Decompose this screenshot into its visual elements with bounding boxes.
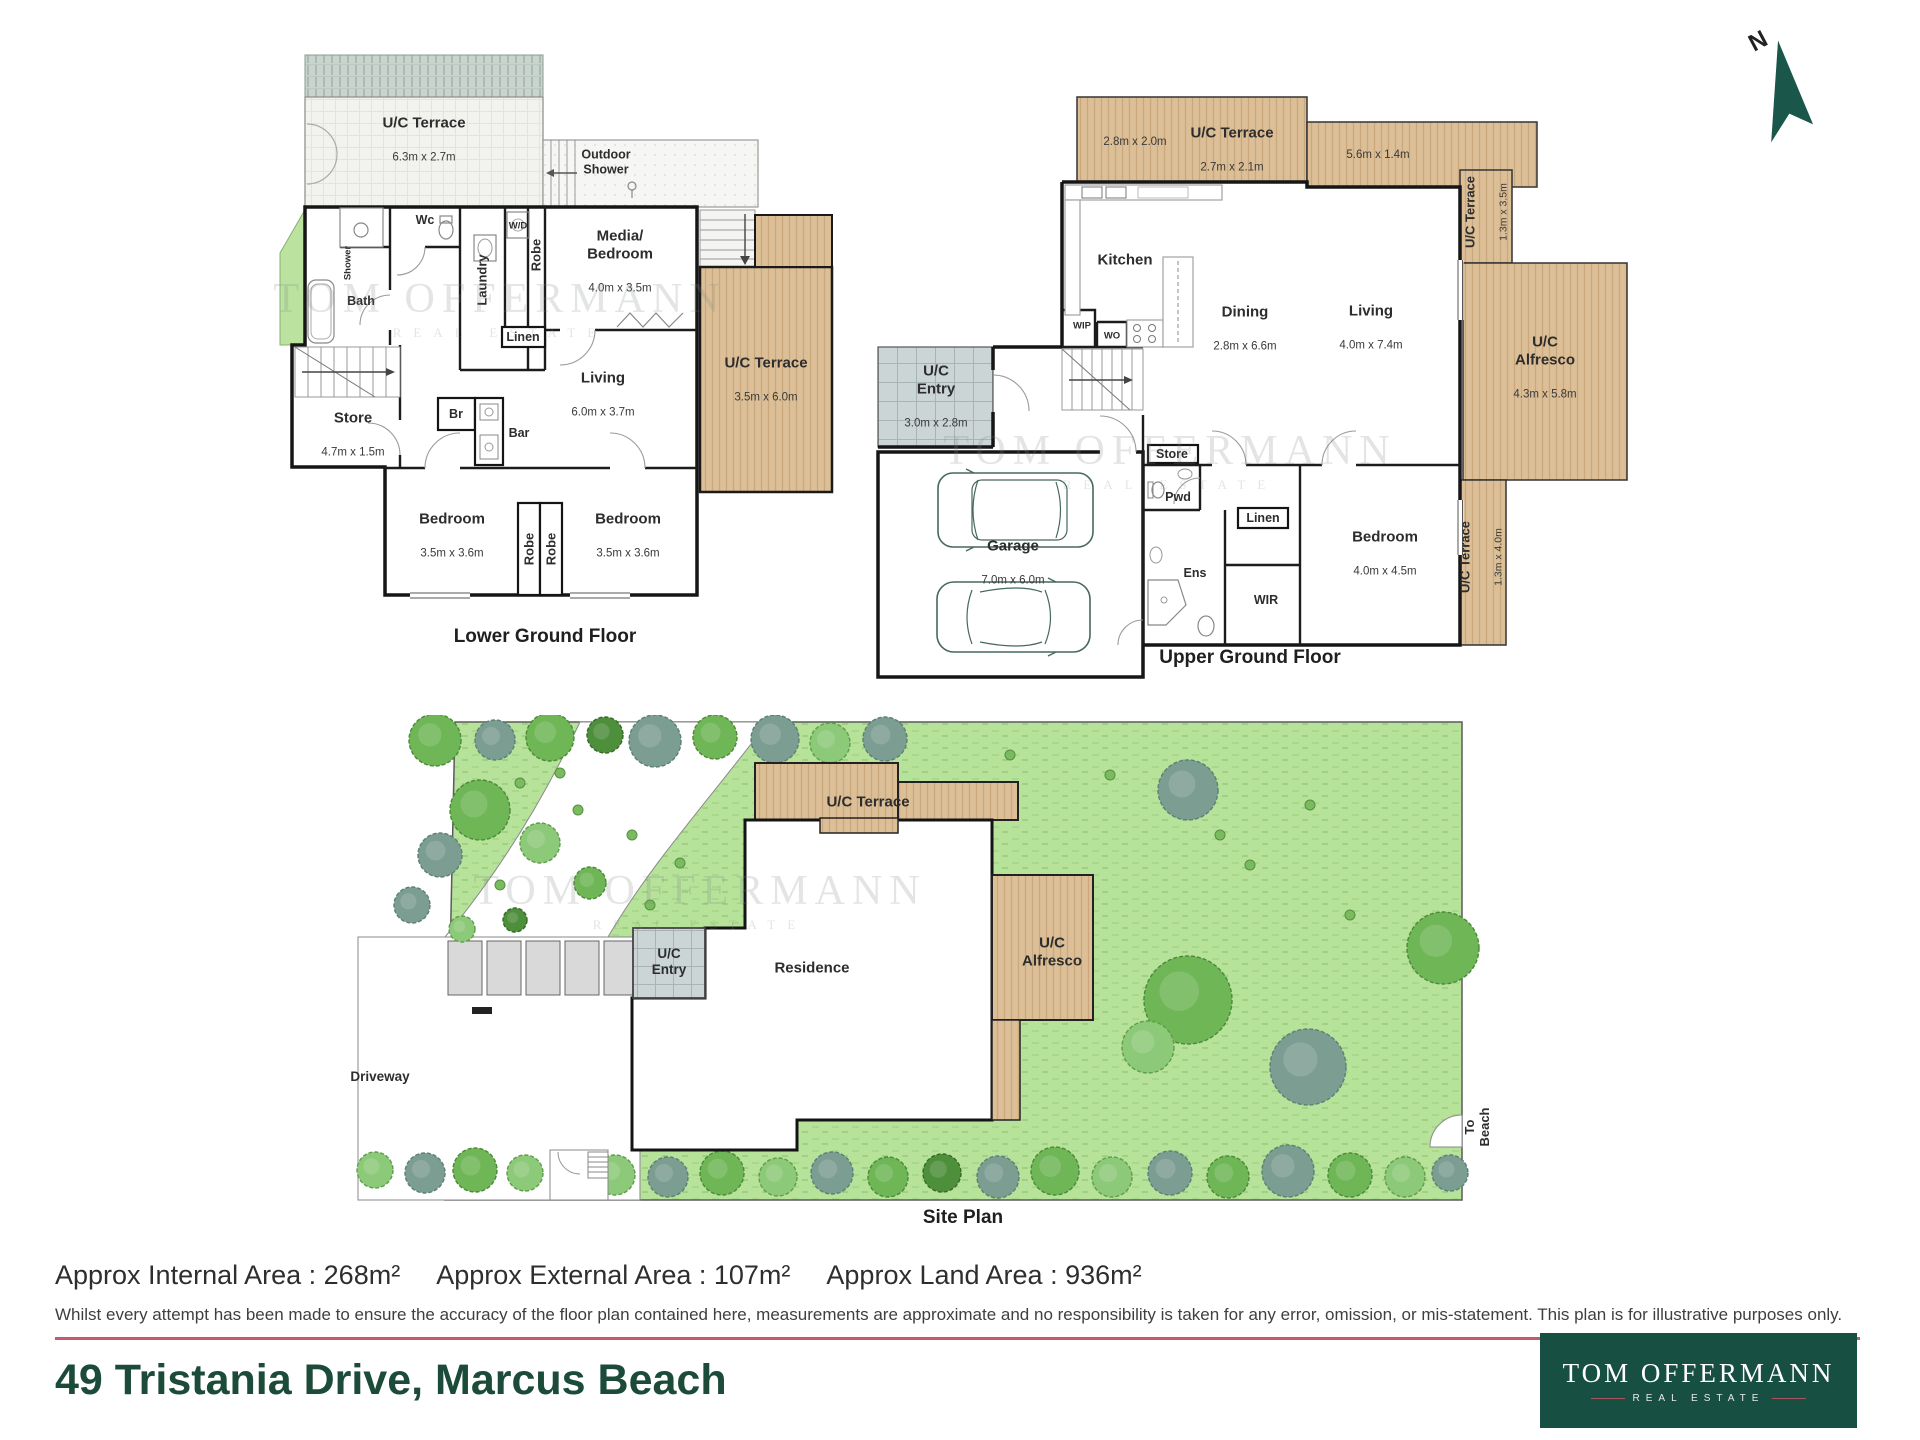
room-label-robe-right: Robe bbox=[524, 533, 577, 566]
site-label-residence: Residence bbox=[774, 940, 849, 995]
room-label-uc-terrace-right: U/C Terrace 3.5m x 6.0m bbox=[724, 336, 807, 425]
room-label-bar: Bar bbox=[509, 407, 530, 460]
lower-ground-floor-plan: U/C Terrace 6.3m x 2.7m Outdoor Shower W… bbox=[240, 40, 860, 660]
logo-rule-right bbox=[1772, 1398, 1806, 1399]
room-label-living: Living 4.0m x 7.4m bbox=[1339, 284, 1402, 373]
site-label-to-beach: To Beach bbox=[1443, 1106, 1511, 1149]
room-label-linen: Linen bbox=[1246, 492, 1279, 545]
room-label-uc-terrace-top: U/C Terrace 2.7m x 2.1m bbox=[1190, 106, 1273, 195]
room-label-uc-terrace-southeast: U/C Terrace 1.3m x 4.0m bbox=[1438, 521, 1523, 593]
room-label-uc-alfresco: U/C Alfresco 4.3m x 5.8m bbox=[1513, 315, 1576, 422]
room-label-bedroom-right: Bedroom 3.5m x 3.6m bbox=[595, 492, 661, 581]
room-label-kitchen: Kitchen bbox=[1097, 232, 1152, 287]
upper-ground-floor-plan: 2.8m x 2.0m U/C Terrace 2.7m x 2.1m 5.6m… bbox=[860, 60, 1650, 700]
site-plan: U/C Terrace Residence U/C Alfresco U/C E… bbox=[350, 715, 1520, 1230]
site-plan-drawing bbox=[350, 715, 1520, 1230]
upper-floor-title: Upper Ground Floor bbox=[1159, 647, 1341, 669]
room-label-dining: Dining 2.8m x 6.6m bbox=[1213, 285, 1276, 374]
compass: N bbox=[1728, 18, 1848, 158]
room-label-wo: WO bbox=[1104, 312, 1120, 361]
lower-floor-title: Lower Ground Floor bbox=[454, 626, 637, 648]
room-label-bedroom: Bedroom 4.0m x 4.5m bbox=[1352, 510, 1418, 599]
room-label-ens: Ens bbox=[1184, 547, 1207, 600]
site-label-uc-alfresco: U/C Alfresco bbox=[1022, 915, 1082, 988]
room-label-garage: Garage 7.0m x 6.0m bbox=[981, 519, 1044, 608]
room-label-laundry: Laundry bbox=[455, 254, 508, 305]
room-label-uc-terrace-east: U/C Terrace 1.3m x 3.5m bbox=[1443, 176, 1528, 248]
property-address: 49 Tristania Drive, Marcus Beach bbox=[55, 1356, 727, 1405]
room-label-linen: Linen bbox=[506, 311, 539, 364]
svg-text:N: N bbox=[1744, 25, 1772, 57]
room-label-store: Store 4.7m x 1.5m bbox=[321, 391, 384, 480]
floorplan-page: U/C Terrace 6.3m x 2.7m Outdoor Shower W… bbox=[0, 0, 1920, 1440]
room-label-uc-terrace-top: U/C Terrace 6.3m x 2.7m bbox=[382, 96, 465, 185]
room-label-media-bedroom: Media/ Bedroom 4.0m x 3.5m bbox=[587, 209, 653, 316]
disclaimer-text: Whilst every attempt has been made to en… bbox=[55, 1305, 1865, 1325]
room-label-wip: WIP bbox=[1073, 302, 1091, 351]
agency-tagline: REAL ESTATE bbox=[1633, 1393, 1765, 1404]
room-label-uc-entry: U/C Entry 3.0m x 2.8m bbox=[904, 344, 967, 451]
site-label-uc-terrace: U/C Terrace bbox=[826, 774, 909, 829]
site-plan-title: Site Plan bbox=[923, 1207, 1003, 1229]
external-area: Approx External Area : 107m² bbox=[436, 1260, 790, 1290]
agency-name: TOM OFFERMANN bbox=[1563, 1358, 1835, 1389]
dims-label-terrace-right: 5.6m x 1.4m bbox=[1346, 129, 1409, 181]
site-label-uc-entry: U/C Entry bbox=[652, 927, 687, 997]
internal-area: Approx Internal Area : 268m² bbox=[55, 1260, 400, 1290]
area-summary: Approx Internal Area : 268m² Approx Exte… bbox=[55, 1260, 1172, 1291]
agency-logo: TOM OFFERMANN REAL ESTATE bbox=[1540, 1333, 1857, 1428]
room-label-robe-top: Robe bbox=[509, 239, 562, 272]
land-area: Approx Land Area : 936m² bbox=[826, 1260, 1141, 1290]
room-label-living: Living 6.0m x 3.7m bbox=[571, 351, 634, 440]
compass-arrow-icon: N bbox=[1728, 18, 1848, 158]
room-label-bedroom-left: Bedroom 3.5m x 3.6m bbox=[419, 492, 485, 581]
room-label-bath: Bath bbox=[347, 275, 375, 328]
logo-rule-left bbox=[1591, 1398, 1625, 1399]
room-label-pwd: Pwd bbox=[1165, 471, 1191, 524]
dims-label-terrace-left: 2.8m x 2.0m bbox=[1103, 116, 1166, 168]
site-label-driveway: Driveway bbox=[350, 1050, 409, 1104]
room-label-wir: WIR bbox=[1254, 574, 1278, 627]
room-label-wc: Wc bbox=[416, 194, 435, 247]
room-label-br: Br bbox=[449, 388, 463, 441]
room-label-outdoor-shower: Outdoor Shower bbox=[581, 128, 630, 195]
